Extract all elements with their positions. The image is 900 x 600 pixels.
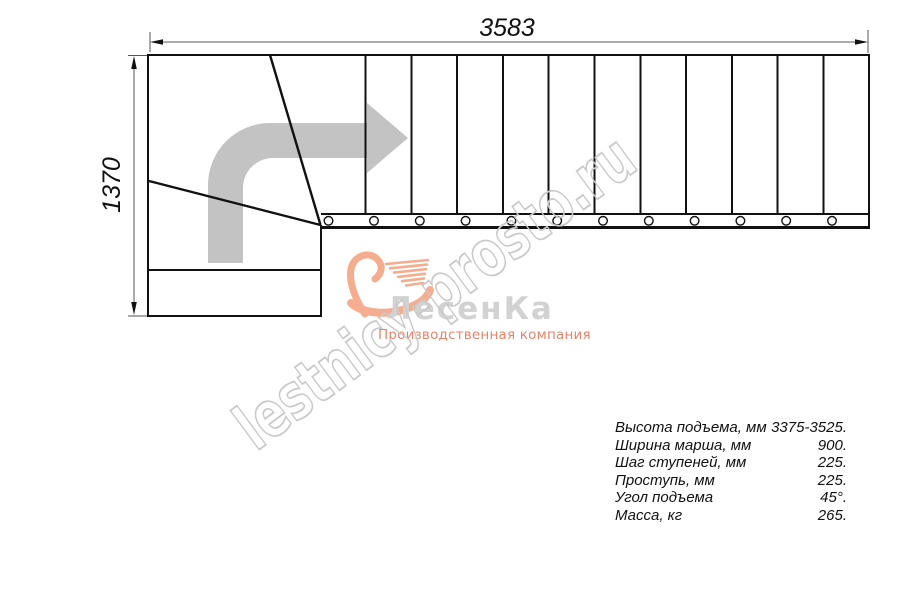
spec-value: 225. [818,472,847,490]
dim-width-value: 3583 [479,14,535,42]
dim-arrow-bottom [131,302,137,315]
dim-arrow-left [150,39,163,45]
spec-label: Высота подъема, мм [615,419,767,437]
spec-label: Проступь, мм [615,472,715,490]
spec-row-height: Высота подъема, мм 3375-3525. [615,419,847,437]
spec-row-mass: Масса, кг 265. [615,507,847,525]
spec-row-step-pitch: Шаг ступеней, мм 225. [615,454,847,472]
spec-value: 900. [818,437,847,455]
specs-table: Высота подъема, мм 3375-3525. Ширина мар… [615,419,847,525]
dim-height-value: 1370 [98,157,126,213]
spec-label: Масса, кг [615,507,682,525]
baluster [645,217,654,226]
spec-label: Ширина марша, мм [615,437,751,455]
spec-value: 225. [818,454,847,472]
watermark-text: lestnicy-prosto.ru [222,121,650,465]
spec-label: Шаг ступеней, мм [615,454,746,472]
baluster [782,217,791,226]
baluster [324,217,333,226]
spec-value: 45°. [820,489,847,507]
baluster [828,217,837,226]
baluster [736,217,745,226]
dimension-width: 3583 [150,14,868,53]
stair-drawing-page: 3583 1370 [0,0,900,600]
dim-arrow-top [131,56,137,69]
baluster [416,217,425,226]
spec-row-flight-width: Ширина марша, мм 900. [615,437,847,455]
baluster [370,217,379,226]
spec-row-tread: Проступь, мм 225. [615,472,847,490]
dim-arrow-right [855,39,868,45]
baluster [599,217,608,226]
baluster [690,217,699,226]
spec-value: 265. [818,507,847,525]
dimension-height: 1370 [98,56,147,317]
spec-value: 3375-3525. [771,419,847,437]
spec-label: Угол подъема [615,489,713,507]
spec-row-angle: Угол подъема 45°. [615,489,847,507]
